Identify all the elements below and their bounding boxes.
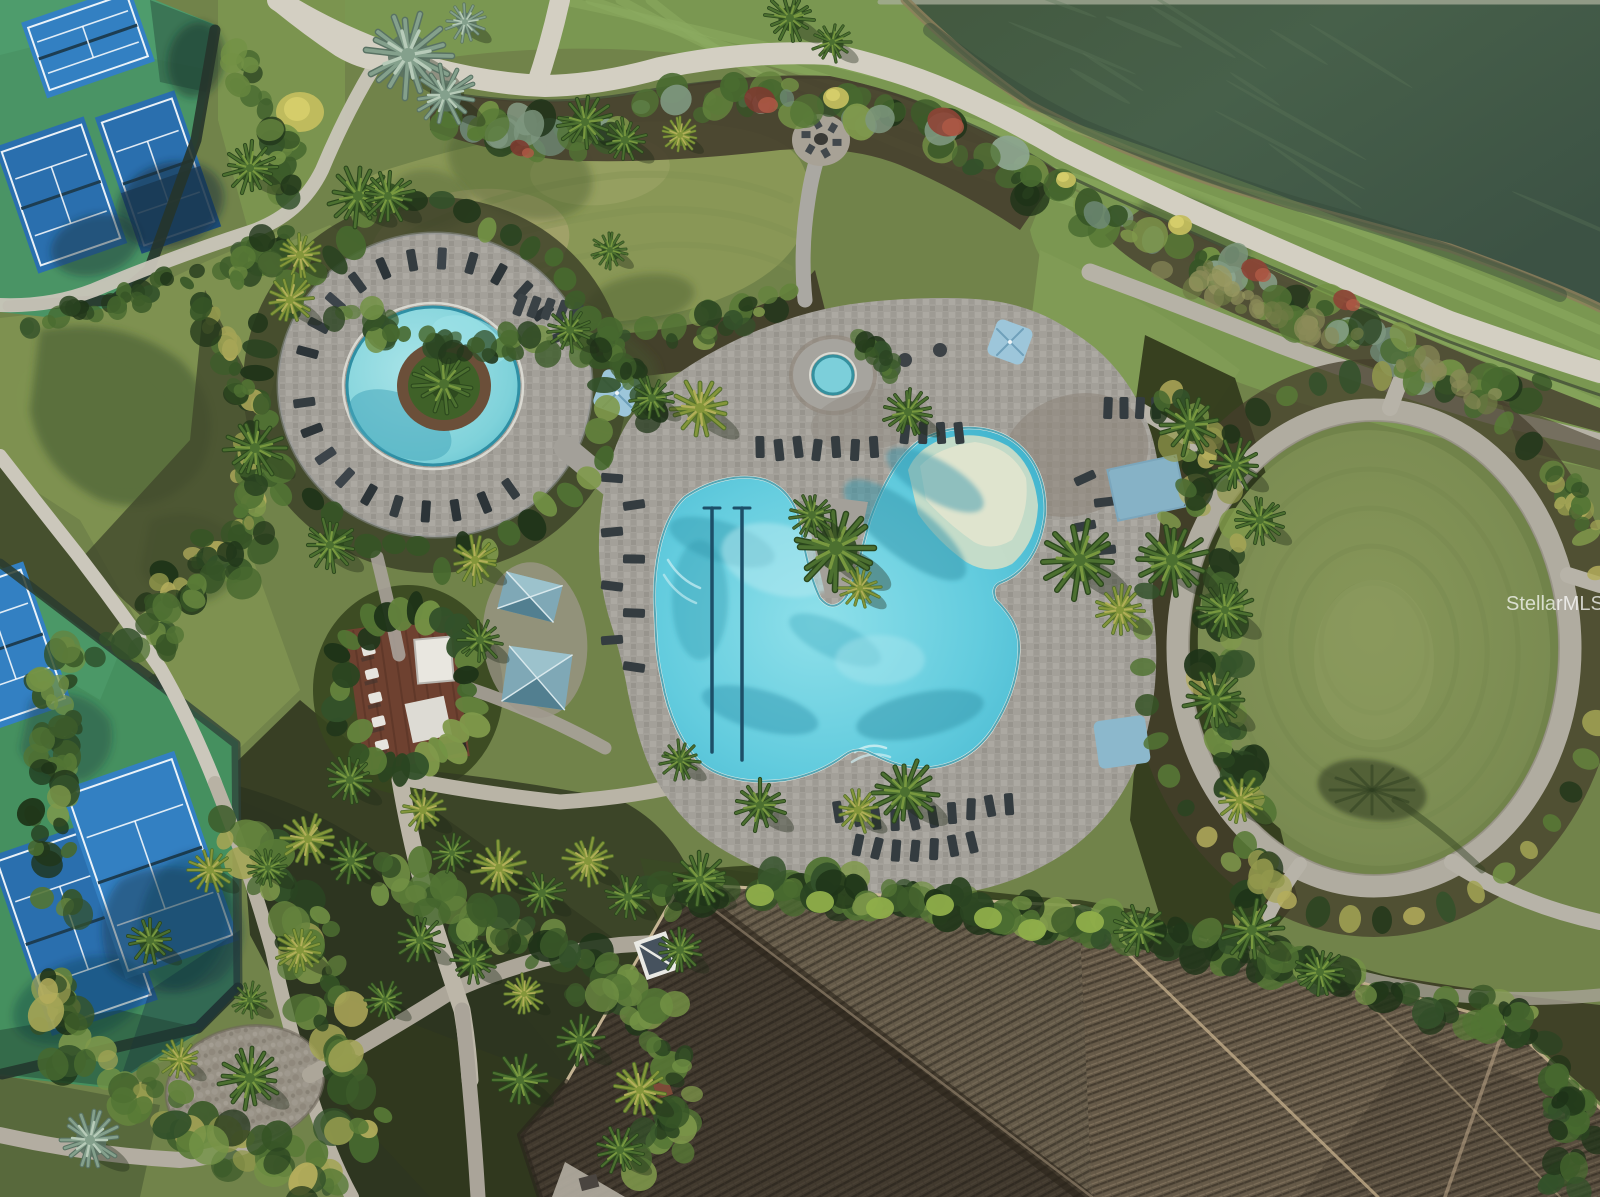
- svg-text:StellarMLS: StellarMLS: [1506, 593, 1600, 615]
